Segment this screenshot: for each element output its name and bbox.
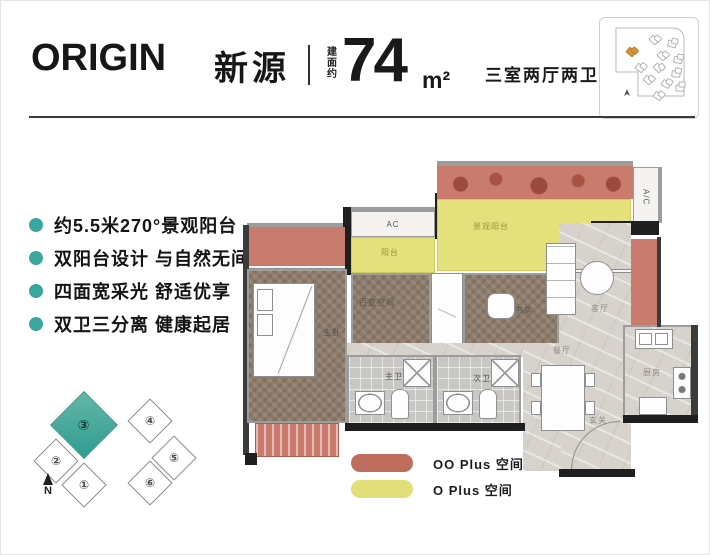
wall — [245, 453, 257, 465]
hanging-clothes-sketch — [438, 284, 456, 342]
unit-shape-4: ④ — [127, 398, 172, 443]
unit-number: ② — [51, 454, 61, 468]
bullet-dot-icon — [29, 284, 43, 298]
balcony-red-side — [631, 239, 658, 327]
shower-icon — [403, 359, 431, 387]
legend-item-red: OO Plus 空间 — [351, 453, 524, 473]
sink-icon — [355, 391, 385, 415]
room-label-study: 书房 — [515, 305, 533, 316]
feature-text: 双卫三分离 健康起居 — [54, 311, 231, 337]
bullet-dot-icon — [29, 317, 43, 331]
balcony-red-master — [249, 227, 345, 269]
wardrobe-icon — [431, 273, 463, 353]
feature-text: 约5.5米270°景观阳台 — [54, 212, 237, 238]
shower-icon — [491, 359, 519, 387]
feature-text: 双阳台设计 与自然无间 — [54, 245, 250, 271]
ac-platform-top: AC — [351, 211, 435, 237]
dining-table-icon — [541, 365, 585, 431]
feature-item: 四面宽采光 舒适优享 — [29, 279, 231, 303]
header-rule — [29, 116, 695, 118]
bay-window-red — [255, 423, 339, 457]
balcony-red-top — [437, 166, 633, 199]
site-plan-drawing — [600, 18, 696, 116]
round-table-icon — [580, 261, 614, 295]
chair-icon — [531, 373, 541, 387]
site-north-arrow-icon — [624, 89, 630, 96]
wall — [657, 237, 661, 327]
room-label-second-bath: 次卫 — [473, 373, 491, 384]
north-indicator: N — [43, 473, 53, 497]
ac-platform-side: A/C — [633, 167, 659, 227]
project-name: 新源 — [214, 41, 290, 90]
bullet-dot-icon — [29, 218, 43, 232]
desk-chair-icon — [487, 293, 515, 319]
sink-basin — [655, 333, 668, 345]
pillow-icon — [257, 314, 273, 336]
header-divider — [308, 45, 310, 85]
north-label: N — [43, 485, 53, 497]
ac-label: AC — [386, 220, 399, 229]
stove-icon — [673, 367, 691, 399]
unit-number: ⑥ — [145, 476, 155, 490]
bed-icon — [253, 283, 315, 377]
blanket-fold — [278, 286, 312, 374]
wall — [691, 325, 698, 417]
wall — [559, 469, 635, 477]
window — [249, 265, 345, 269]
unit-number: ③ — [78, 416, 90, 433]
room-label-master: 主卧 — [323, 327, 341, 338]
unit-number: ⑤ — [169, 451, 179, 465]
north-arrow-icon — [43, 473, 53, 485]
room-label-kitchen: 厨房 — [643, 367, 661, 378]
floorplan-poster: ORIGIN 新源 建面约 74 m² 三室两厅两卫 — [0, 0, 710, 555]
wall — [659, 167, 662, 223]
room-label-master-bath: 主卫 — [385, 371, 403, 382]
sofa-icon — [546, 243, 576, 315]
kitchen-sink-icon — [635, 329, 673, 349]
legend-label: O Plus 空间 — [433, 480, 513, 499]
chair-icon — [531, 401, 541, 415]
wall — [623, 415, 698, 423]
area-prefix: 建面约 — [327, 47, 339, 80]
unit-number: ① — [79, 478, 89, 492]
counter-icon — [639, 397, 667, 415]
room-label-balcony: 阳台 — [381, 247, 399, 258]
sink-icon — [443, 391, 473, 415]
legend-swatch-yellow — [351, 480, 413, 498]
legend-item-yellow: O Plus 空间 — [351, 479, 513, 499]
site-plan-map — [599, 17, 699, 119]
chair-icon — [585, 373, 595, 387]
room-label-view-balcony: 景观阳台 — [473, 221, 509, 232]
legend-swatch-red — [351, 454, 413, 472]
chair-icon — [585, 401, 595, 415]
bullet-dot-icon — [29, 251, 43, 265]
area-unit: m² — [422, 67, 450, 94]
sink-basin — [639, 333, 652, 345]
room-label-dining: 餐厅 — [553, 345, 571, 356]
floor-plan: 景观阳台 阳台 AC A/C 主卧 百变空间 书房 — [239, 159, 701, 491]
unit-number: ④ — [145, 414, 155, 428]
feature-text: 四面宽采光 舒适优享 — [54, 278, 231, 304]
area-value: 74 — [342, 25, 405, 96]
wall — [345, 423, 525, 431]
room-label-living: 客厅 — [591, 303, 609, 314]
ac-side-label: A/C — [642, 189, 651, 205]
brand-logo: ORIGIN — [31, 37, 166, 80]
building-diagram: ① ② ③ ④ ⑤ ⑥ N — [21, 373, 236, 541]
room-label-flex: 百变空间 — [359, 297, 395, 308]
layout-description: 三室两厅两卫 — [485, 61, 599, 86]
pillow-icon — [257, 289, 273, 311]
toilet-icon — [391, 389, 409, 419]
feature-item: 双阳台设计 与自然无间 — [29, 246, 250, 270]
feature-item: 约5.5米270°景观阳台 — [29, 213, 237, 237]
toilet-icon — [479, 389, 497, 419]
legend-label: OO Plus 空间 — [433, 454, 524, 473]
feature-item: 双卫三分离 健康起居 — [29, 312, 231, 336]
